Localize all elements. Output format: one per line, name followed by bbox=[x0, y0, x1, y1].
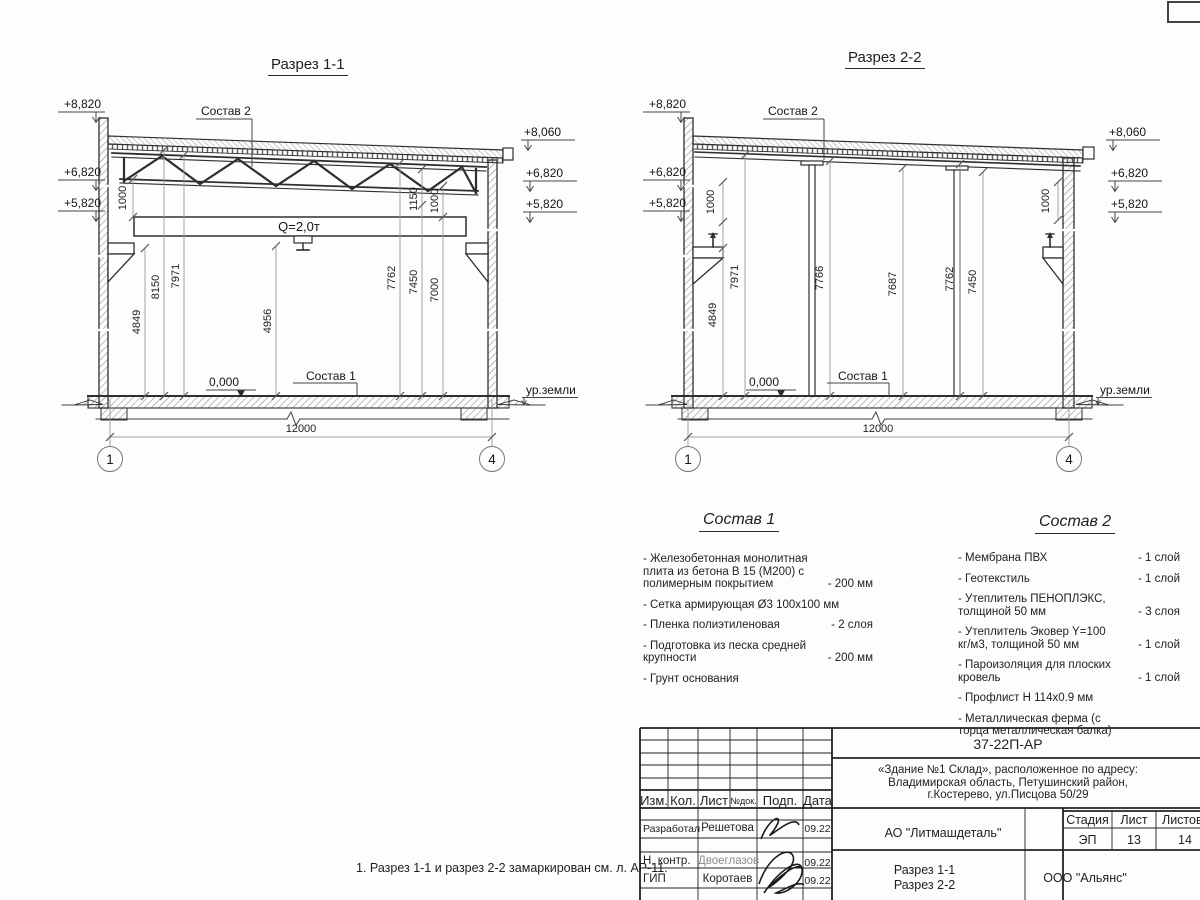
tb-date-1: 09.22 bbox=[803, 823, 832, 835]
tb-col-kol: Кол. bbox=[668, 793, 698, 808]
list-item: - Пароизоляция для плоских кровель - 1 с… bbox=[958, 659, 1180, 684]
s2-foundation-left bbox=[682, 408, 708, 420]
tb-col-podp: Подп. bbox=[757, 793, 803, 808]
s2-roof-edge-plate bbox=[1083, 147, 1094, 159]
tb-document-code: 37-22П-АР bbox=[832, 736, 1184, 752]
s2-dim-7687: 7687 bbox=[887, 272, 899, 296]
s2-dim-7971: 7971 bbox=[729, 265, 741, 289]
s2-elev-6820-left: +6,820 bbox=[649, 165, 686, 179]
tb-col-data: Дата bbox=[803, 793, 832, 808]
s1-dim-7971: 7971 bbox=[170, 264, 182, 288]
drawing-sheet: 1000 4849 8150 7971 4956 7762 7450 7000 … bbox=[0, 0, 1200, 900]
sostav1-item-value: - 2 слоя bbox=[831, 619, 873, 632]
list-item: - Утеплитель ПЕНОПЛЭКС, толщиной 50 мм -… bbox=[958, 593, 1180, 618]
list-item: - Пленка полиэтиленовая - 2 слоя bbox=[643, 619, 873, 632]
s1-roof-edge-plate bbox=[503, 148, 513, 160]
sostav2-item-value: - 1 слой bbox=[1138, 552, 1180, 565]
s1-floor-slab bbox=[88, 396, 509, 408]
s1-elev-8060: +8,060 bbox=[524, 125, 561, 139]
tb-name-dvoeglazov: Двоеглазов bbox=[698, 855, 757, 867]
section-1-1-drawing bbox=[62, 118, 545, 425]
s1-sostav1-label: Состав 1 bbox=[306, 369, 356, 383]
s1-axes: 12000 1 4 bbox=[98, 400, 505, 472]
drawing-note: 1. Разрез 1-1 и разрез 2-2 замаркирован … bbox=[356, 861, 668, 875]
s1-elev-6820-left: +6,820 bbox=[64, 165, 101, 179]
list-item: - Железобетонная монолитная плита из бет… bbox=[643, 553, 873, 591]
section-2-2-title: Разрез 2-2 bbox=[845, 49, 925, 69]
signatures bbox=[759, 819, 804, 894]
sostav1-item-name: - Подготовка из песка средней крупности bbox=[643, 640, 811, 665]
tb-name-korotaev: Коротаев bbox=[698, 873, 757, 885]
s2-dim-7766: 7766 bbox=[814, 266, 826, 290]
s1-brackets bbox=[108, 243, 488, 282]
sostav1-item-name: - Железобетонная монолитная плита из бет… bbox=[643, 553, 811, 591]
s1-axis-4: 4 bbox=[488, 452, 496, 467]
s2-ground-level-label: ур.земли bbox=[1100, 383, 1150, 397]
sostav1-item-name: - Грунт основания bbox=[643, 673, 863, 686]
sostav1-item-value: - 200 мм bbox=[828, 578, 873, 591]
s2-elev-8820: +8,820 bbox=[649, 97, 686, 111]
s2-dim-7450: 7450 bbox=[967, 270, 979, 294]
tb-stage-value: ЭП bbox=[1063, 833, 1112, 847]
s2-dim-1000-right: 1000 bbox=[1040, 189, 1052, 213]
signature-gip bbox=[759, 852, 804, 893]
sostav2-item-value: - 3 слоя bbox=[1138, 606, 1180, 619]
tb-role-gip: ГИП bbox=[643, 873, 666, 885]
s2-dimension-labels: 1000 4849 7971 7766 7687 7762 7450 1000 bbox=[705, 189, 1052, 327]
section-1-1-title: Разрез 1-1 bbox=[268, 56, 348, 76]
s1-right-wall bbox=[488, 160, 497, 408]
list-item: - Металлическая ферма (с торца металличе… bbox=[958, 713, 1180, 738]
sostav1-item-value: - 200 мм bbox=[828, 652, 873, 665]
s1-sostav2-label: Состав 2 bbox=[201, 104, 251, 118]
s2-axis-1: 1 bbox=[684, 452, 692, 467]
tb-view1: Разрез 1-1 bbox=[828, 863, 1021, 878]
signature-reshetova bbox=[761, 819, 799, 839]
tb-name-reshetova: Решетова bbox=[698, 822, 757, 834]
s1-dim-7000: 7000 bbox=[429, 278, 441, 302]
s1-dim-7450: 7450 bbox=[408, 270, 420, 294]
tb-customer: АО "Литмашдеталь" bbox=[843, 826, 1043, 840]
sostav2-item-name: - Пароизоляция для плоских кровель bbox=[958, 659, 1126, 684]
list-item: - Профлист Н 114х0.9 мм bbox=[958, 692, 1180, 705]
s1-foundation-left bbox=[101, 408, 127, 420]
sostav1-list: - Железобетонная монолитная плита из бет… bbox=[643, 553, 873, 693]
s2-span-12000: 12000 bbox=[863, 423, 894, 435]
tb-sheet-value: 13 bbox=[1112, 833, 1156, 847]
s2-zero-mark: 0,000 bbox=[749, 375, 779, 389]
sostav2-item-value: - 1 слой bbox=[1138, 573, 1180, 586]
sostav2-list: - Мембрана ПВХ - 1 слой - Геотекстиль - … bbox=[958, 552, 1180, 746]
list-item: - Сетка армирующая Ø3 100х100 мм bbox=[643, 599, 873, 612]
tb-organization: ООО "Альянс" bbox=[1025, 871, 1145, 885]
sostav2-item-name: - Металлическая ферма (с торца металличе… bbox=[958, 713, 1128, 738]
s2-dim-7762: 7762 bbox=[944, 267, 956, 291]
sostav2-item-name: - Геотекстиль bbox=[958, 573, 1108, 586]
sostav2-item-name: - Утеплитель Эковер Y=100 кг/м3, толщино… bbox=[958, 626, 1118, 651]
sheet-corner-box bbox=[1168, 2, 1200, 22]
s1-crane-trolley bbox=[294, 236, 312, 250]
list-item: - Мембрана ПВХ - 1 слой bbox=[958, 552, 1180, 565]
s2-dim-1000-left: 1000 bbox=[705, 190, 717, 214]
s2-elev-8060: +8,060 bbox=[1109, 125, 1146, 139]
list-item: - Подготовка из песка средней крупности … bbox=[643, 640, 873, 665]
s2-floor-slab bbox=[672, 396, 1092, 408]
s1-dim-7762: 7762 bbox=[386, 266, 398, 290]
s1-dim-1150: 1150 bbox=[408, 187, 420, 211]
s1-span-12000: 12000 bbox=[286, 423, 317, 435]
s1-zero-mark: 0,000 bbox=[209, 375, 239, 389]
sostav1-item-name: - Сетка армирующая Ø3 100х100 мм bbox=[643, 599, 863, 612]
tb-col-list: Лист bbox=[698, 793, 730, 808]
s2-elev-5820-right: +5,820 bbox=[1111, 197, 1148, 211]
tb-role-developer: Разработал bbox=[643, 823, 700, 835]
sostav1-title: Состав 1 bbox=[699, 511, 779, 532]
s2-left-wall bbox=[684, 118, 693, 408]
s1-left-wall bbox=[99, 118, 108, 408]
sostav2-item-value: - 1 слой bbox=[1138, 639, 1180, 652]
tb-object-line3: г.Костерево, ул.Писцова 50/29 bbox=[832, 789, 1184, 802]
s1-foundation-right bbox=[461, 408, 487, 420]
sostav2-title: Состав 2 bbox=[1035, 513, 1115, 534]
s1-dim-4849: 4849 bbox=[131, 310, 143, 334]
s2-right-wall bbox=[1063, 158, 1074, 408]
s1-dim-4956: 4956 bbox=[262, 309, 274, 333]
tb-col-ndok: №док. bbox=[730, 796, 757, 806]
tb-col-izm: Изм. bbox=[640, 793, 668, 808]
s2-elev-6820-right: +6,820 bbox=[1111, 166, 1148, 180]
tb-role-ncontrol: Н. контр. bbox=[643, 855, 690, 867]
list-item: - Грунт основания bbox=[643, 673, 873, 686]
tb-object-line1: «Здание №1 Склад», расположенное по адре… bbox=[832, 764, 1184, 777]
s1-elev-5820-left: +5,820 bbox=[64, 196, 101, 210]
list-item: - Геотекстиль - 1 слой bbox=[958, 573, 1180, 586]
s2-sostav2-label: Состав 2 bbox=[768, 104, 818, 118]
s1-dim-8150: 8150 bbox=[150, 275, 162, 299]
tb-sheets-value: 14 bbox=[1156, 833, 1200, 847]
s2-sostav1-label: Состав 1 bbox=[838, 369, 888, 383]
s1-ground-level-label: ур.земли bbox=[526, 383, 576, 397]
sostav2-item-name: - Профлист Н 114х0.9 мм bbox=[958, 692, 1174, 705]
s2-axis-4: 4 bbox=[1065, 452, 1073, 467]
s1-crane-capacity-label: Q=2,0т bbox=[278, 219, 320, 234]
sostav2-item-name: - Мембрана ПВХ bbox=[958, 552, 1108, 565]
s1-elev-5820-right: +5,820 bbox=[526, 197, 563, 211]
s1-dim-1000-left: 1000 bbox=[117, 186, 129, 210]
sostav1-item-name: - Пленка полиэтиленовая bbox=[643, 619, 793, 632]
s1-elev-8820: +8,820 bbox=[64, 97, 101, 111]
s2-elev-5820-left: +5,820 bbox=[649, 196, 686, 210]
tb-object-line2: Владимирская область, Петушинский район, bbox=[832, 777, 1184, 790]
s1-axis-1: 1 bbox=[106, 452, 114, 467]
s1-elev-6820-right: +6,820 bbox=[526, 166, 563, 180]
tb-view2: Разрез 2-2 bbox=[828, 878, 1021, 893]
s1-dim-1000-right: 1000 bbox=[429, 189, 441, 213]
s1-dimension-labels: 1000 4849 8150 7971 4956 7762 7450 7000 … bbox=[117, 186, 441, 334]
list-item: - Утеплитель Эковер Y=100 кг/м3, толщино… bbox=[958, 626, 1180, 651]
tb-sheet-label: Лист bbox=[1112, 813, 1156, 827]
s2-axes: 12000 1 4 bbox=[676, 400, 1082, 472]
s2-brackets bbox=[693, 232, 1063, 284]
sostav2-item-name: - Утеплитель ПЕНОПЛЭКС, толщиной 50 мм bbox=[958, 593, 1108, 618]
sostav2-item-value: - 1 слой bbox=[1138, 672, 1180, 685]
s2-dim-4849: 4849 bbox=[707, 303, 719, 327]
tb-stage-label: Стадия bbox=[1063, 813, 1112, 827]
tb-sheets-label: Листов bbox=[1162, 813, 1200, 827]
